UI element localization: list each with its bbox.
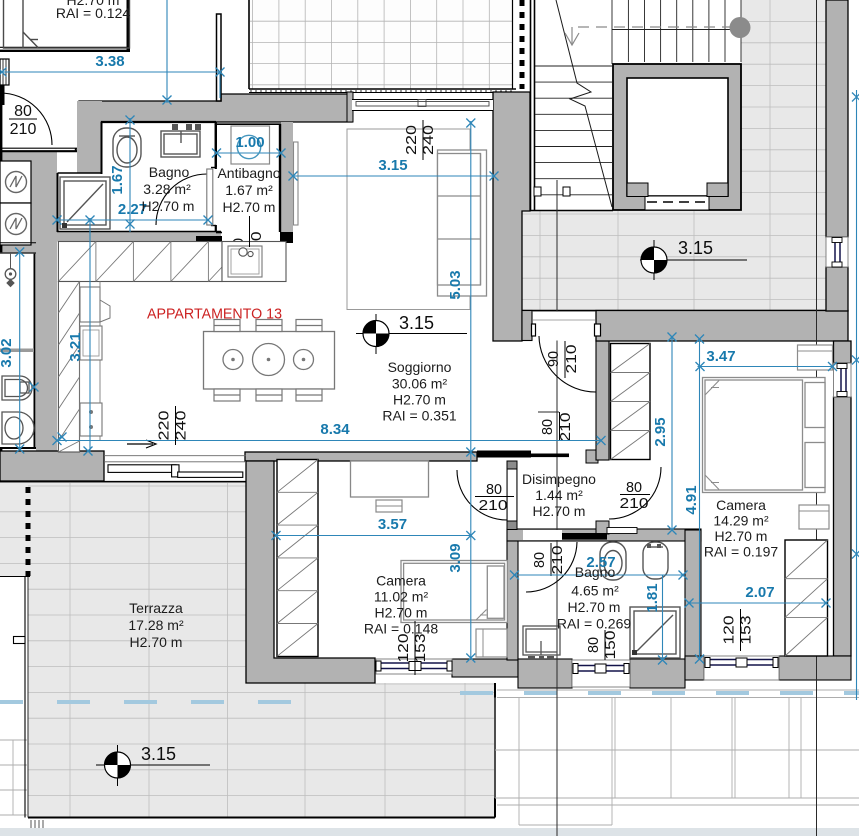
svg-text:Camera: Camera: [716, 497, 766, 513]
svg-text:210: 210: [557, 413, 574, 442]
svg-text:1.81: 1.81: [644, 583, 661, 612]
svg-text:3.21: 3.21: [67, 332, 84, 361]
svg-text:Camera: Camera: [376, 573, 426, 589]
svg-text:120: 120: [721, 616, 738, 645]
svg-text:1.67: 1.67: [109, 165, 126, 194]
svg-text:240: 240: [173, 411, 190, 441]
svg-text:210: 210: [563, 345, 580, 374]
svg-text:H2.70 m: H2.70 m: [375, 605, 428, 621]
svg-text:1.44 m²: 1.44 m²: [535, 487, 583, 503]
svg-text:4.91: 4.91: [683, 485, 700, 514]
svg-text:2.07: 2.07: [745, 584, 774, 601]
svg-text:H2.70 m: H2.70 m: [393, 392, 446, 408]
svg-text:RAI = 0.269: RAI = 0.269: [557, 616, 632, 632]
svg-text:30.06 m²: 30.06 m²: [392, 376, 448, 392]
svg-text:220: 220: [156, 411, 173, 441]
svg-text:APPARTAMENTO 13: APPARTAMENTO 13: [147, 307, 282, 323]
svg-text:H2.70 m: H2.70 m: [533, 503, 586, 519]
svg-text:3.57: 3.57: [378, 516, 407, 533]
svg-text:153: 153: [412, 634, 429, 663]
svg-text:220: 220: [403, 125, 420, 155]
svg-text:3.15: 3.15: [141, 744, 176, 764]
svg-text:Disimpegno: Disimpegno: [522, 471, 596, 487]
svg-text:RAI = 0.148: RAI = 0.148: [364, 621, 439, 637]
svg-text:80: 80: [626, 479, 642, 496]
svg-text:5.03: 5.03: [447, 270, 464, 299]
svg-text:14.29 m²: 14.29 m²: [713, 513, 769, 529]
svg-text:1.00: 1.00: [235, 134, 264, 151]
svg-text:80: 80: [539, 419, 556, 435]
svg-text:RAI = 0.197: RAI = 0.197: [704, 544, 779, 560]
svg-text:3.47: 3.47: [706, 348, 735, 365]
svg-text:H2.70 m: H2.70 m: [715, 528, 768, 544]
svg-text:210: 210: [479, 497, 508, 514]
svg-text:RAI = 0.351: RAI = 0.351: [382, 408, 457, 424]
svg-text:3.02: 3.02: [0, 338, 15, 367]
svg-text:2.95: 2.95: [652, 417, 669, 446]
svg-text:3.28 m²: 3.28 m²: [143, 181, 191, 197]
svg-text:80: 80: [585, 637, 602, 653]
svg-text:240: 240: [420, 125, 437, 155]
svg-text:Bagno: Bagno: [149, 164, 190, 180]
svg-text:1.67 m²: 1.67 m²: [225, 182, 273, 198]
svg-text:210: 210: [10, 121, 37, 138]
svg-text:8.34: 8.34: [320, 421, 350, 438]
svg-text:80: 80: [14, 103, 32, 120]
svg-text:120: 120: [395, 634, 412, 663]
svg-text:80: 80: [486, 481, 502, 498]
svg-text:3.38: 3.38: [95, 53, 124, 70]
svg-text:H2.70 m: H2.70 m: [223, 199, 276, 215]
svg-text:3.15: 3.15: [678, 238, 713, 258]
svg-text:Antibagno: Antibagno: [217, 165, 280, 181]
svg-text:3.15: 3.15: [378, 157, 407, 174]
svg-text:H2.70 m: H2.70 m: [142, 198, 195, 214]
svg-text:153: 153: [738, 616, 755, 645]
svg-text:80: 80: [531, 552, 548, 568]
svg-text:3.09: 3.09: [447, 543, 464, 572]
svg-text:210: 210: [549, 546, 566, 575]
svg-text:RAI = 0.124: RAI = 0.124: [56, 5, 131, 21]
svg-text:H2.70 m: H2.70 m: [568, 599, 621, 615]
svg-text:90: 90: [545, 351, 562, 367]
svg-text:210: 210: [620, 495, 649, 512]
svg-text:3.15: 3.15: [399, 313, 434, 333]
svg-text:4.65 m²: 4.65 m²: [571, 583, 619, 599]
svg-text:H2.70 m: H2.70 m: [130, 634, 183, 650]
svg-text:Terrazza: Terrazza: [129, 600, 183, 616]
svg-text:11.02 m²: 11.02 m²: [374, 589, 429, 605]
svg-text:17.28 m²: 17.28 m²: [128, 617, 184, 633]
svg-text:Bagno: Bagno: [575, 564, 616, 580]
svg-text:Soggiorno: Soggiorno: [388, 359, 452, 375]
svg-text:150: 150: [602, 631, 619, 660]
